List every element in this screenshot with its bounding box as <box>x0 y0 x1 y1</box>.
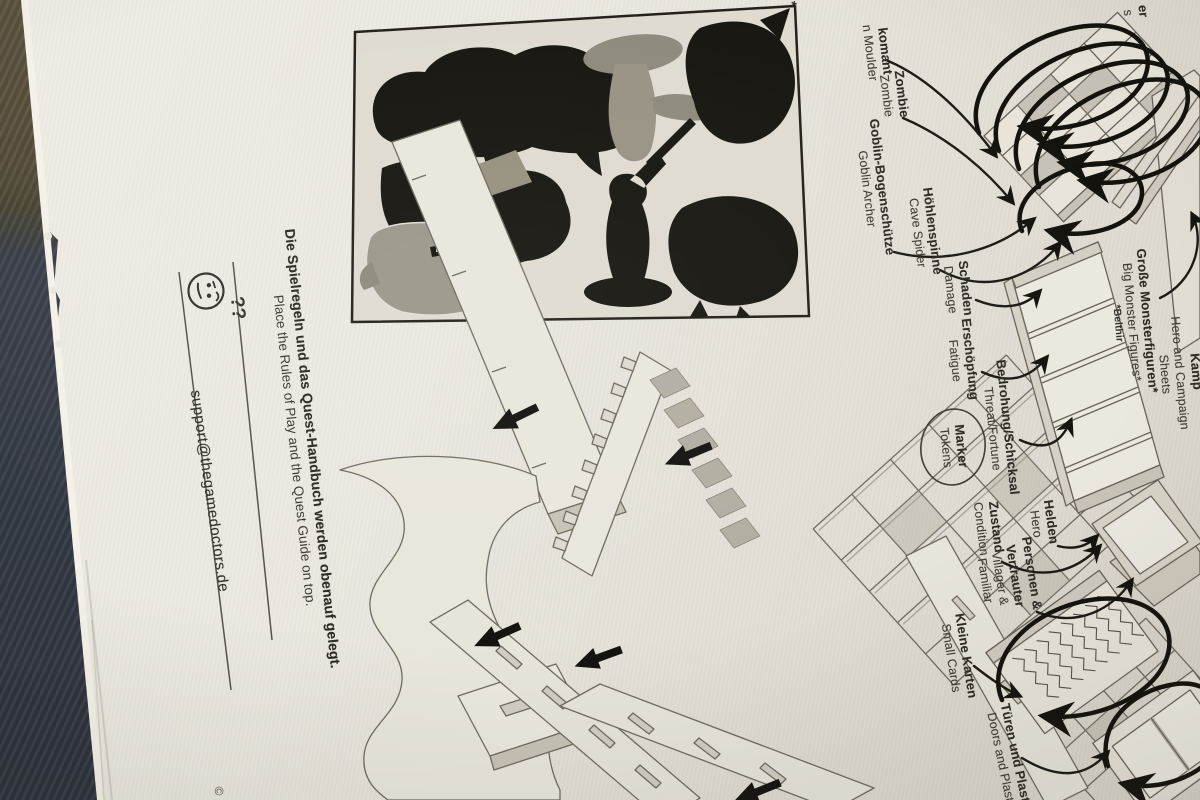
callout-text: s <box>1119 9 1135 17</box>
paper-tear-marks <box>44 232 112 800</box>
callout-text: Sheets <box>1155 354 1174 395</box>
photographed-manual-page: komantn MoulderZombieZombieGoblin-Bogens… <box>0 0 1200 800</box>
callout-text: er <box>1134 4 1151 18</box>
divider-stack <box>650 368 760 548</box>
question-marks: ?? <box>223 292 250 324</box>
confused-smiley-icon <box>187 272 225 310</box>
copyright-symbol: © <box>209 780 229 800</box>
printed-artwork <box>0 0 1200 800</box>
footnote-asterisk: * <box>783 0 801 13</box>
arrow-hero <box>1058 536 1097 548</box>
callout-edge-fragment: ers <box>1116 0 1154 34</box>
